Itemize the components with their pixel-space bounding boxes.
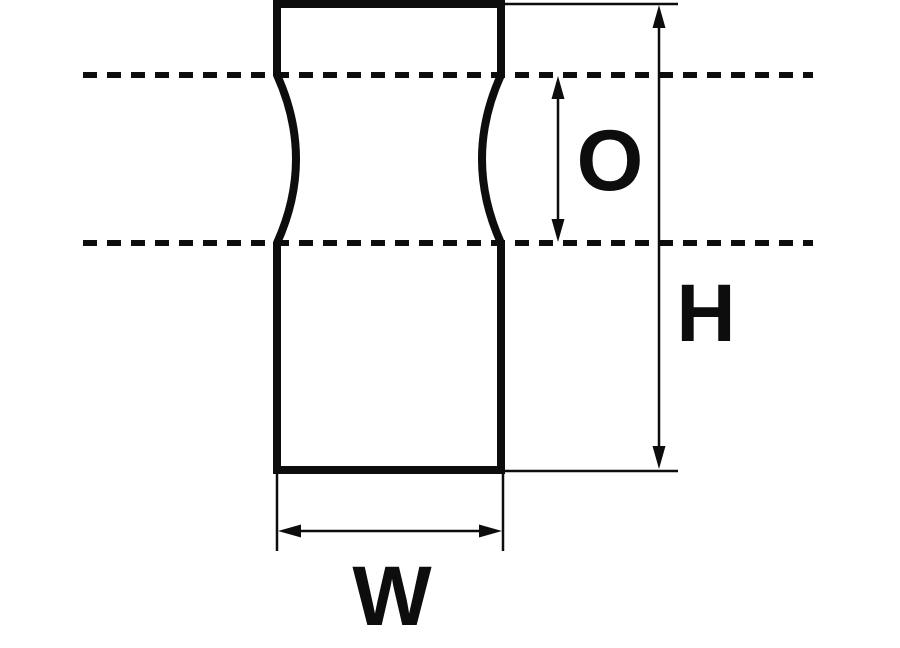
- w-arrowhead-right-icon: [479, 525, 502, 538]
- h-arrowhead-down-icon: [653, 446, 666, 469]
- o-dimension: O: [552, 76, 644, 242]
- w-dimension-label: W: [352, 549, 432, 643]
- o-arrowhead-down-icon: [552, 219, 565, 242]
- o-arrowhead-up-icon: [552, 76, 565, 99]
- w-dimension: W: [277, 472, 503, 643]
- diagram-canvas: O H W: [0, 0, 900, 648]
- dimension-diagram: O H W: [0, 0, 900, 648]
- h-arrowhead-up-icon: [653, 5, 666, 28]
- h-dimension-label: H: [676, 268, 735, 359]
- w-arrowhead-left-icon: [278, 525, 301, 538]
- o-dimension-label: O: [577, 113, 644, 209]
